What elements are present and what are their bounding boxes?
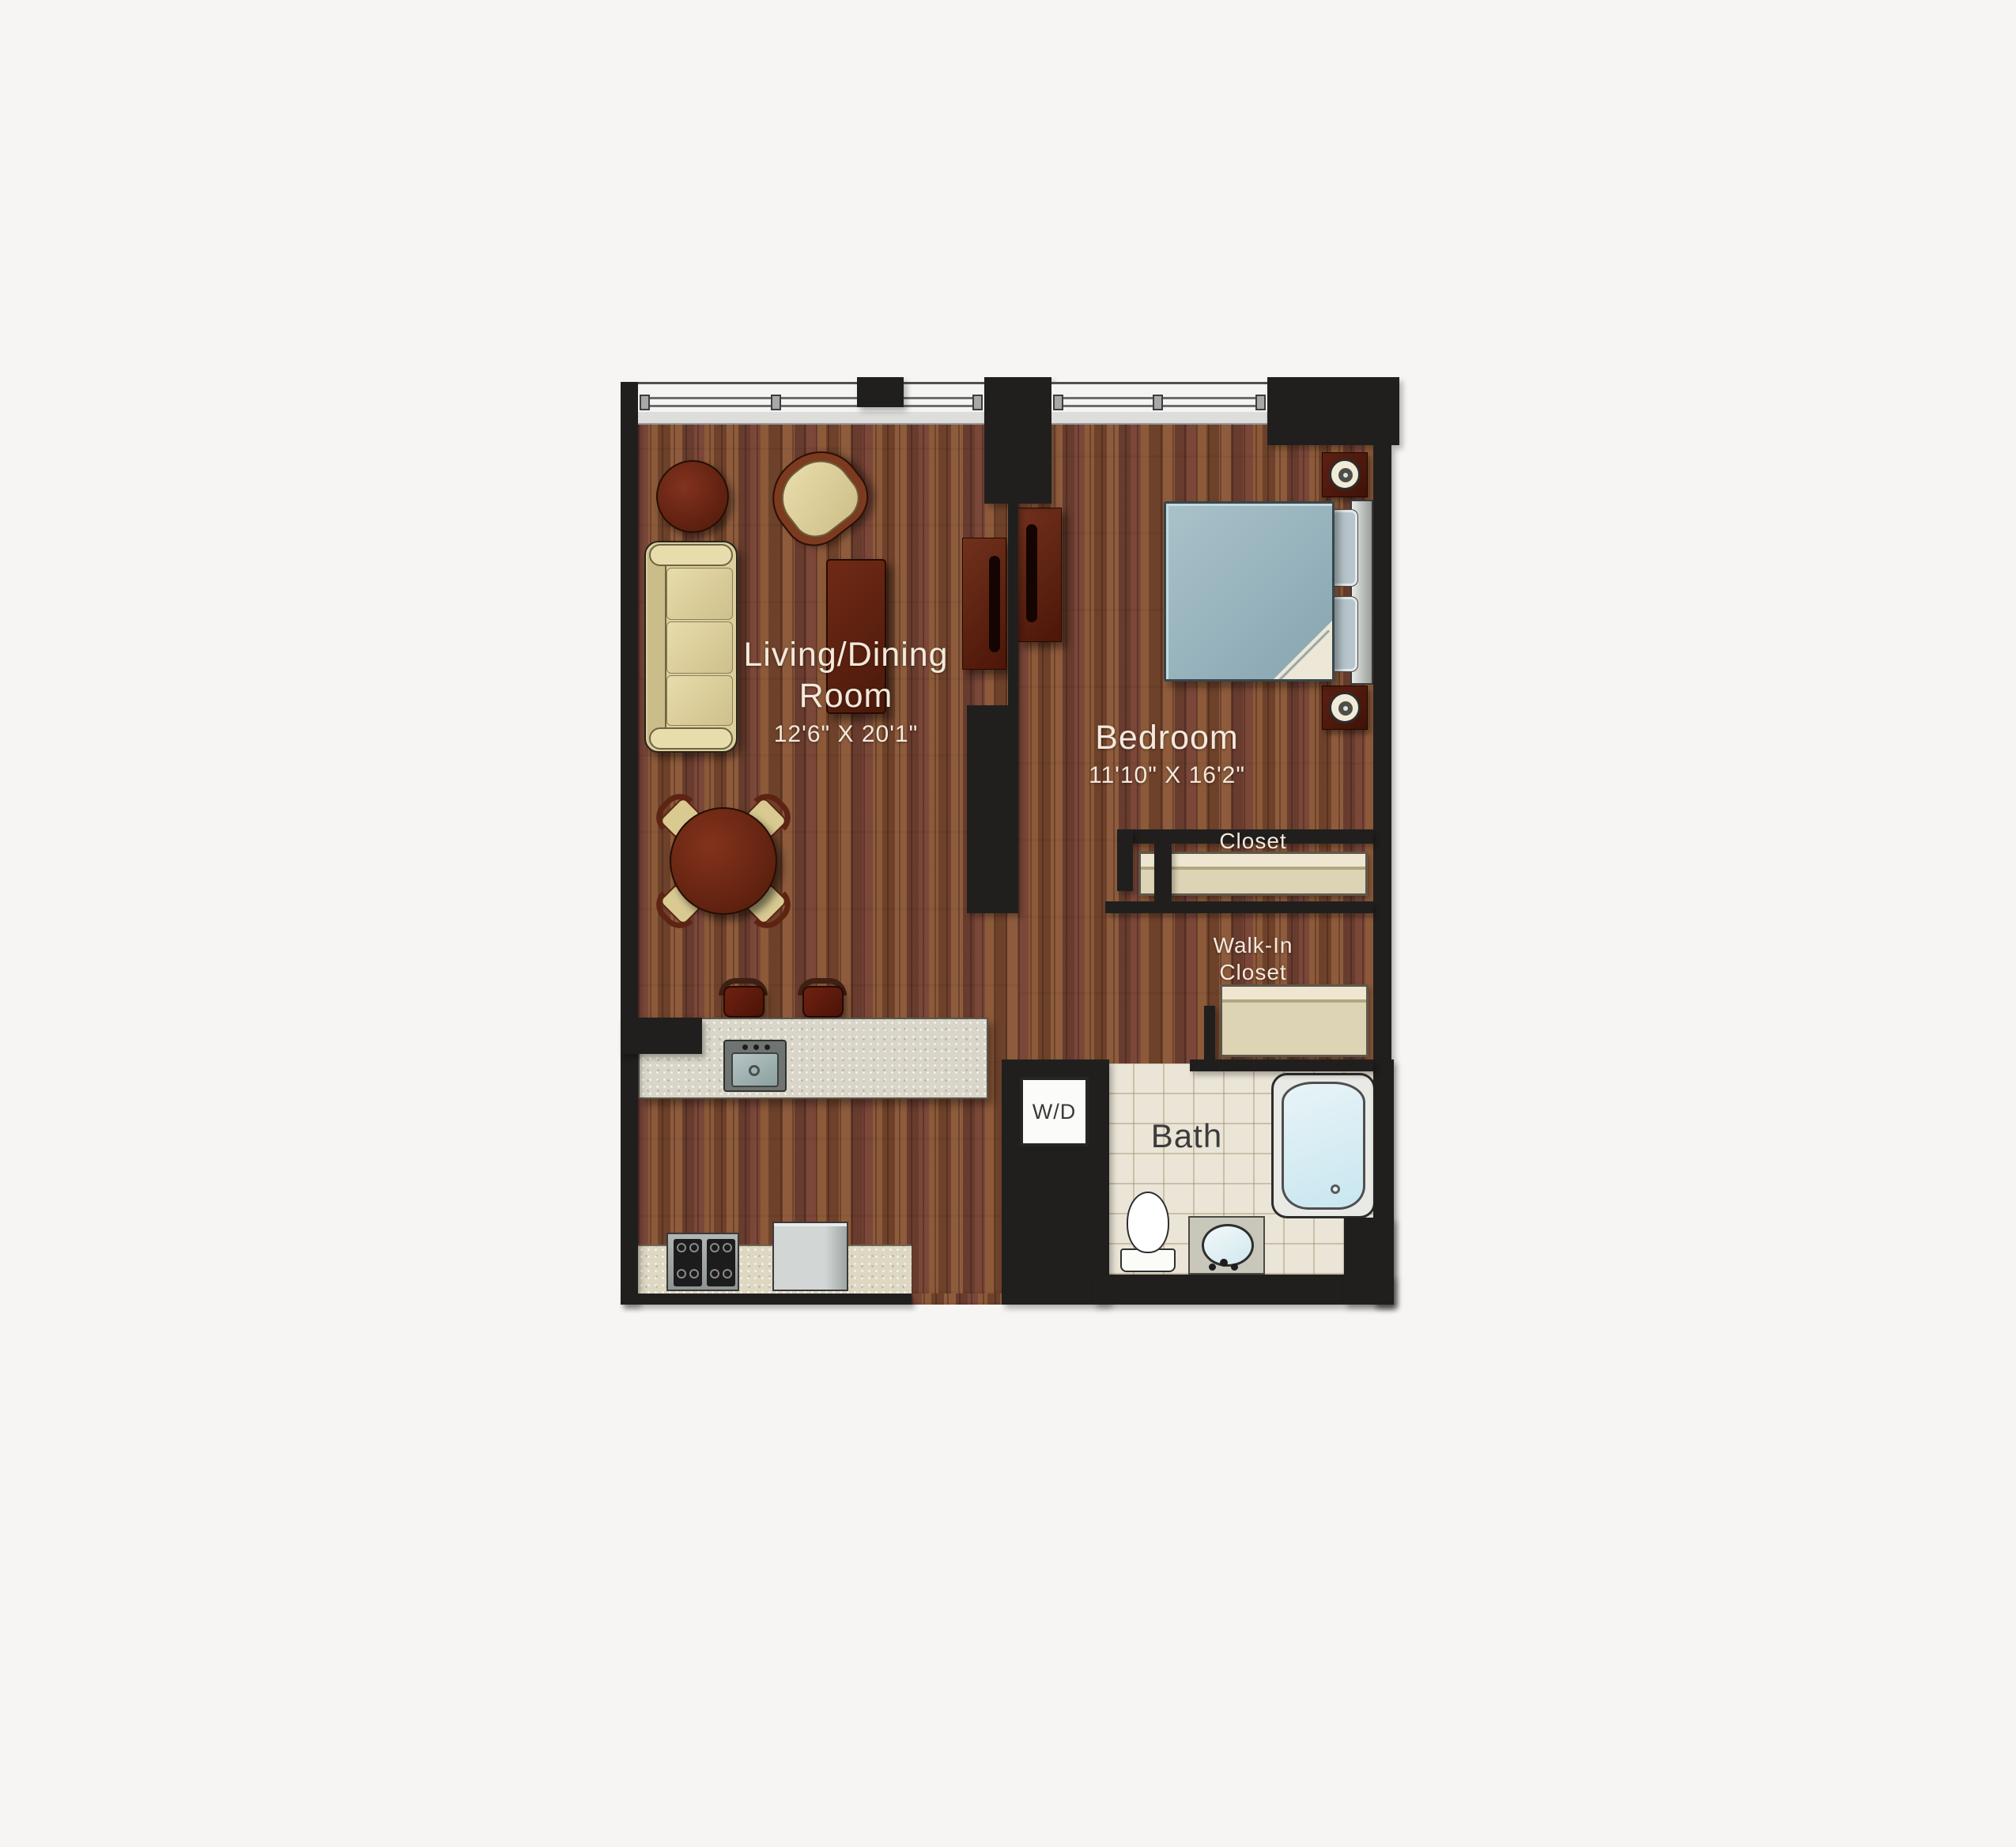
refrigerator [772, 1222, 848, 1291]
tv-slot [989, 556, 1000, 652]
wall-partition-thin [1008, 504, 1018, 705]
bedroom-dimensions: 11'10" X 16'2" [1060, 761, 1274, 791]
window-mullion [1153, 395, 1163, 410]
duvet-fold [1271, 618, 1335, 682]
burner-plate [674, 1239, 702, 1286]
closet-shelf [1138, 852, 1368, 896]
closet-label: Closet [1142, 828, 1364, 855]
wall-closet-top-cap [1117, 829, 1133, 891]
burner [677, 1269, 686, 1279]
floor-plan: W/D Living/Dining Room 12'6" X 20'1" Bed… [621, 377, 1399, 1305]
wall-walkin-stub [1204, 1006, 1215, 1059]
tub-basin [1282, 1082, 1365, 1210]
window-mullion [640, 395, 650, 410]
lamp-bulb [1343, 706, 1348, 711]
lamp-bulb [1343, 473, 1348, 478]
wall-window-break [857, 377, 904, 407]
burner [710, 1269, 719, 1279]
walk-in-closet-line1: Walk-In [1166, 932, 1340, 959]
window-rail [641, 397, 981, 407]
dining-table [670, 807, 777, 915]
bedroom-label: Bedroom 11'10" X 16'2" [1060, 717, 1274, 791]
toilet-bowl [1127, 1192, 1169, 1253]
window-bedroom [1051, 382, 1267, 425]
wall-island-stub [621, 1018, 702, 1054]
stool-seat [802, 986, 844, 1018]
bar-stool [720, 978, 768, 1018]
sofa-back [647, 546, 666, 748]
walk-in-closet-label: Walk-In Closet [1166, 932, 1340, 986]
sofa-arm-top [649, 544, 733, 566]
window-mullion [972, 395, 983, 410]
nightstand-top [1322, 452, 1368, 497]
washer-dryer: W/D [1020, 1077, 1089, 1146]
bar-stool [799, 978, 847, 1018]
entry-hall-floor [912, 1294, 1002, 1305]
burner [723, 1243, 732, 1252]
burner [677, 1243, 686, 1252]
side-table [656, 460, 729, 533]
bed-duvet [1164, 501, 1335, 682]
bedroom-name: Bedroom [1060, 717, 1274, 758]
wall-bath-right-corner [1344, 1218, 1394, 1305]
nightstand-bottom [1322, 686, 1368, 730]
vanity [1188, 1216, 1265, 1275]
burner [723, 1269, 732, 1279]
burner [689, 1243, 699, 1252]
window-mullion [1255, 395, 1266, 410]
stove [666, 1233, 739, 1291]
wall-partition-lower [967, 705, 1018, 913]
washer-dryer-label: W/D [1033, 1100, 1076, 1124]
media-console-bedroom [1017, 508, 1062, 642]
sink-faucet-dot [764, 1044, 770, 1050]
tub-drain [1331, 1184, 1340, 1194]
burner [710, 1243, 719, 1252]
burner-plate [707, 1239, 735, 1286]
sink-faucet-dot [753, 1044, 759, 1050]
walk-in-closet-line2: Closet [1166, 959, 1340, 986]
stool-seat [723, 986, 764, 1018]
window-mullion [771, 395, 781, 410]
living-dining-name-line1: Living/Dining [723, 634, 968, 675]
wall-bottom-kitchen [621, 1294, 912, 1305]
wall-left [621, 382, 638, 1305]
wall-closet-bottom [1105, 901, 1373, 913]
window-living [638, 382, 984, 425]
page-background: { "floorplan": { "labels": { "living_din… [0, 0, 2016, 1847]
wall-partition-top [984, 377, 1051, 504]
living-dining-label: Living/Dining Room 12'6" X 20'1" [723, 634, 968, 750]
window-mullion [1053, 395, 1063, 410]
tv-slot [1026, 524, 1037, 622]
faucet-dot [1231, 1263, 1238, 1271]
wall-bath-top [1190, 1059, 1373, 1071]
walk-in-closet-shelf [1220, 984, 1369, 1057]
sofa-cushion [666, 568, 733, 620]
wall-top-right-block [1267, 377, 1399, 445]
bath-label: Bath [1123, 1117, 1250, 1155]
sofa-arm-bottom [649, 727, 733, 750]
living-dining-name-line2: Room [723, 675, 968, 716]
bathtub [1271, 1073, 1376, 1218]
living-dining-dimensions: 12'6" X 20'1" [723, 720, 968, 750]
toilet [1119, 1192, 1177, 1275]
island-sink [723, 1040, 787, 1092]
sink-drain [749, 1065, 760, 1076]
burner [689, 1269, 699, 1279]
faucet-dot [1220, 1259, 1228, 1267]
media-console-living [962, 538, 1006, 670]
faucet-dot [1209, 1263, 1216, 1271]
sink-faucet-dot [742, 1044, 748, 1050]
vanity-sink [1202, 1224, 1254, 1267]
